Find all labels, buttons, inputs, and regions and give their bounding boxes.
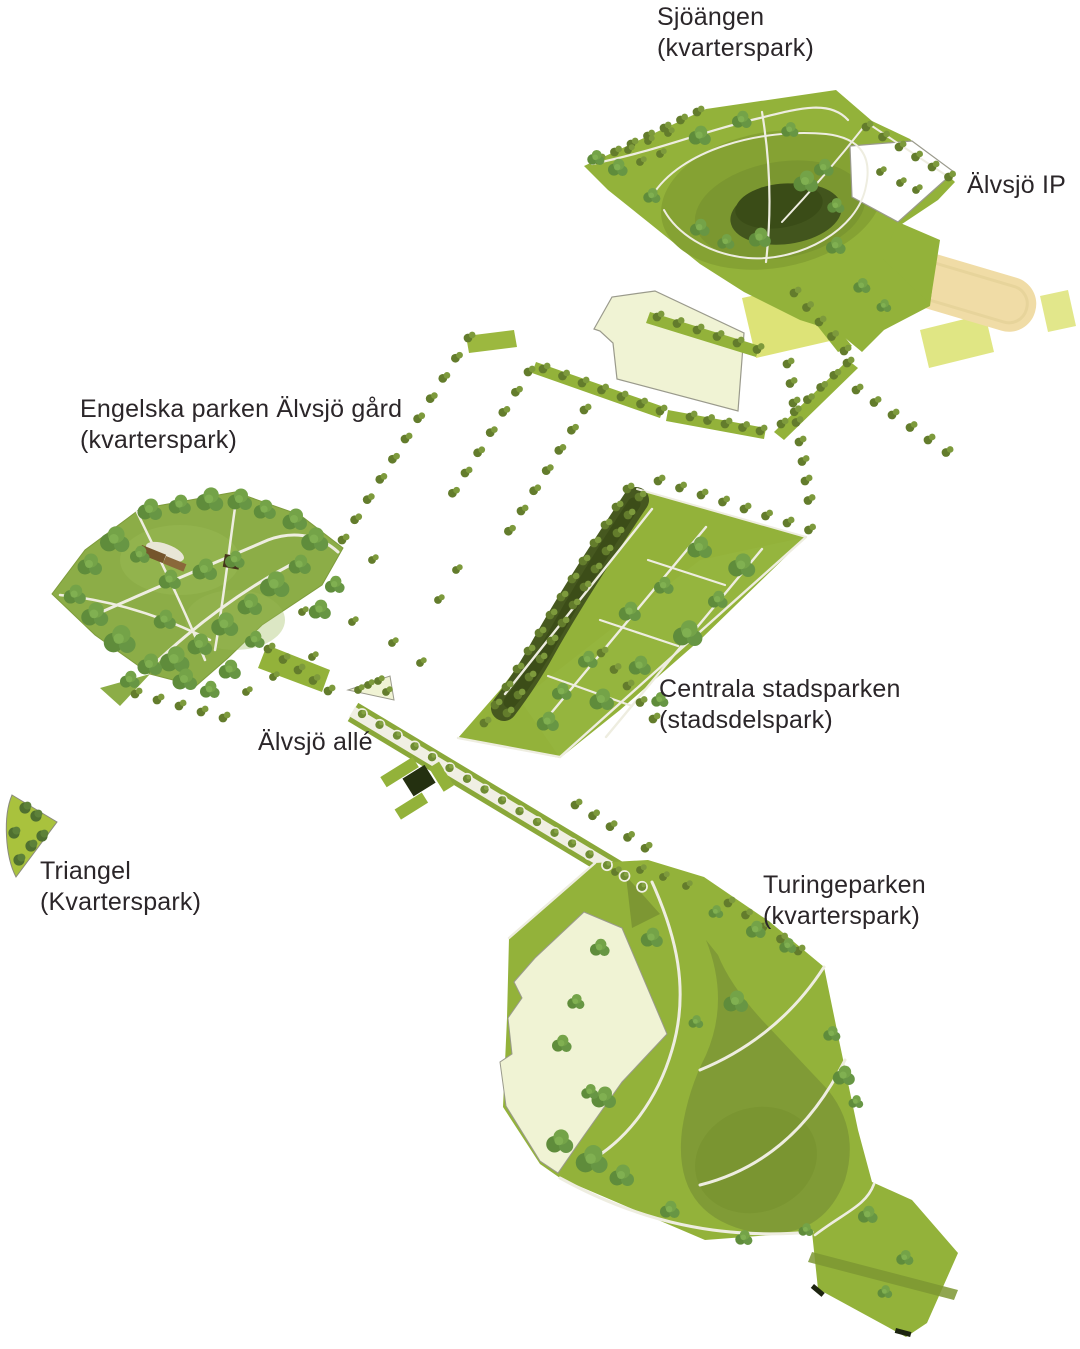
park-map-illustration (0, 0, 1080, 1349)
park-name: Engelska parken Älvsjö gård (80, 394, 402, 425)
park-qualifier: (kvarterspark) (657, 33, 814, 64)
label-sjoangen: Sjöängen (kvarterspark) (657, 2, 814, 64)
park-name: Triangel (40, 856, 201, 887)
park-qualifier: (kvarterspark) (763, 901, 926, 932)
label-engelska-parken: Engelska parken Älvsjö gård (kvarterspar… (80, 394, 402, 456)
label-centrala-stadsparken: Centrala stadsparken (stadsdelspark) (659, 674, 901, 736)
label-triangel: Triangel (Kvarterspark) (40, 856, 201, 918)
park-name: Älvsjö allé (258, 727, 373, 758)
park-name: Sjöängen (657, 2, 814, 33)
park-name: Turingeparken (763, 870, 926, 901)
label-alvsjo-alle: Älvsjö allé (258, 727, 373, 758)
park-qualifier: (Kvarterspark) (40, 887, 201, 918)
label-turingeparken: Turingeparken (kvarterspark) (763, 870, 926, 932)
park-name: Centrala stadsparken (659, 674, 901, 705)
park-name: Älvsjö IP (967, 170, 1066, 201)
park-plan-canvas: Sjöängen (kvarterspark) Älvsjö IP Engels… (0, 0, 1080, 1349)
park-qualifier: (stadsdelspark) (659, 705, 901, 736)
label-alvsjo-ip: Älvsjö IP (967, 170, 1066, 201)
park-qualifier: (kvarterspark) (80, 425, 402, 456)
